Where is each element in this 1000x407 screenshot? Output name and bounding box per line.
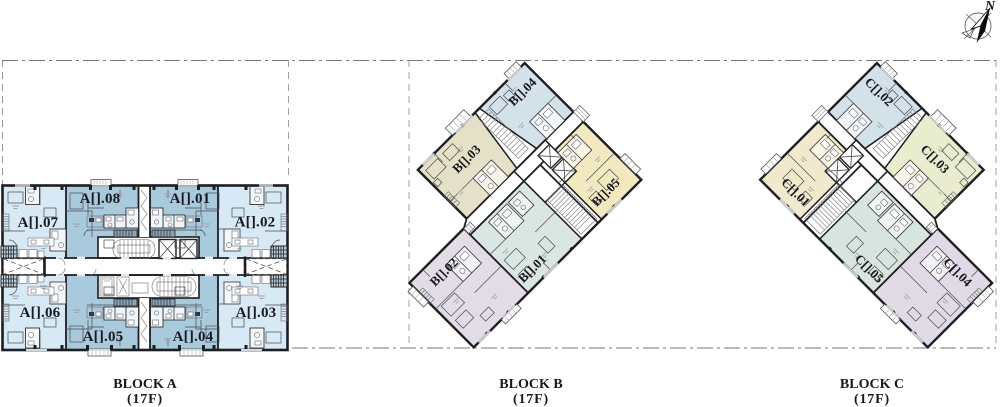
svg-text:(17F): (17F) xyxy=(854,392,890,407)
svg-text:A[].03: A[].03 xyxy=(236,305,277,321)
svg-text:A[].02: A[].02 xyxy=(235,215,276,231)
svg-text:A[].04: A[].04 xyxy=(173,329,214,345)
svg-text:A[].06: A[].06 xyxy=(20,305,61,321)
svg-text:N: N xyxy=(984,0,996,14)
svg-text:A[].05: A[].05 xyxy=(83,329,124,345)
svg-text:BLOCK B: BLOCK B xyxy=(499,377,562,392)
svg-text:A[].07: A[].07 xyxy=(18,215,59,231)
svg-text:(17F): (17F) xyxy=(127,392,163,407)
svg-text:BLOCK A: BLOCK A xyxy=(113,377,177,392)
svg-text:A[].08: A[].08 xyxy=(80,191,121,207)
svg-text:BLOCK C: BLOCK C xyxy=(840,377,904,392)
svg-text:(17F): (17F) xyxy=(513,392,549,407)
svg-text:A[].01: A[].01 xyxy=(170,191,211,207)
